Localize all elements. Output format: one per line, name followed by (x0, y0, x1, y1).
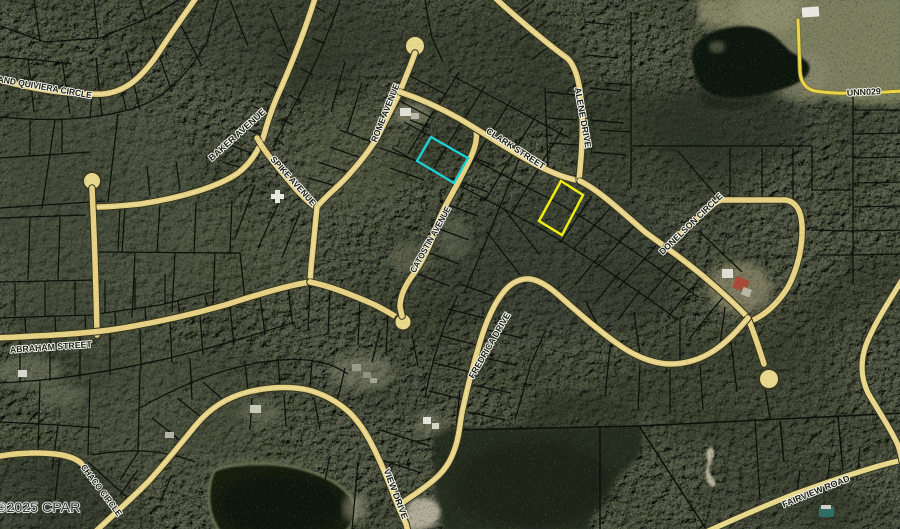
svg-text:©2025 CPAR: ©2025 CPAR (0, 500, 80, 516)
svg-text:UNN029: UNN029 (847, 86, 882, 98)
